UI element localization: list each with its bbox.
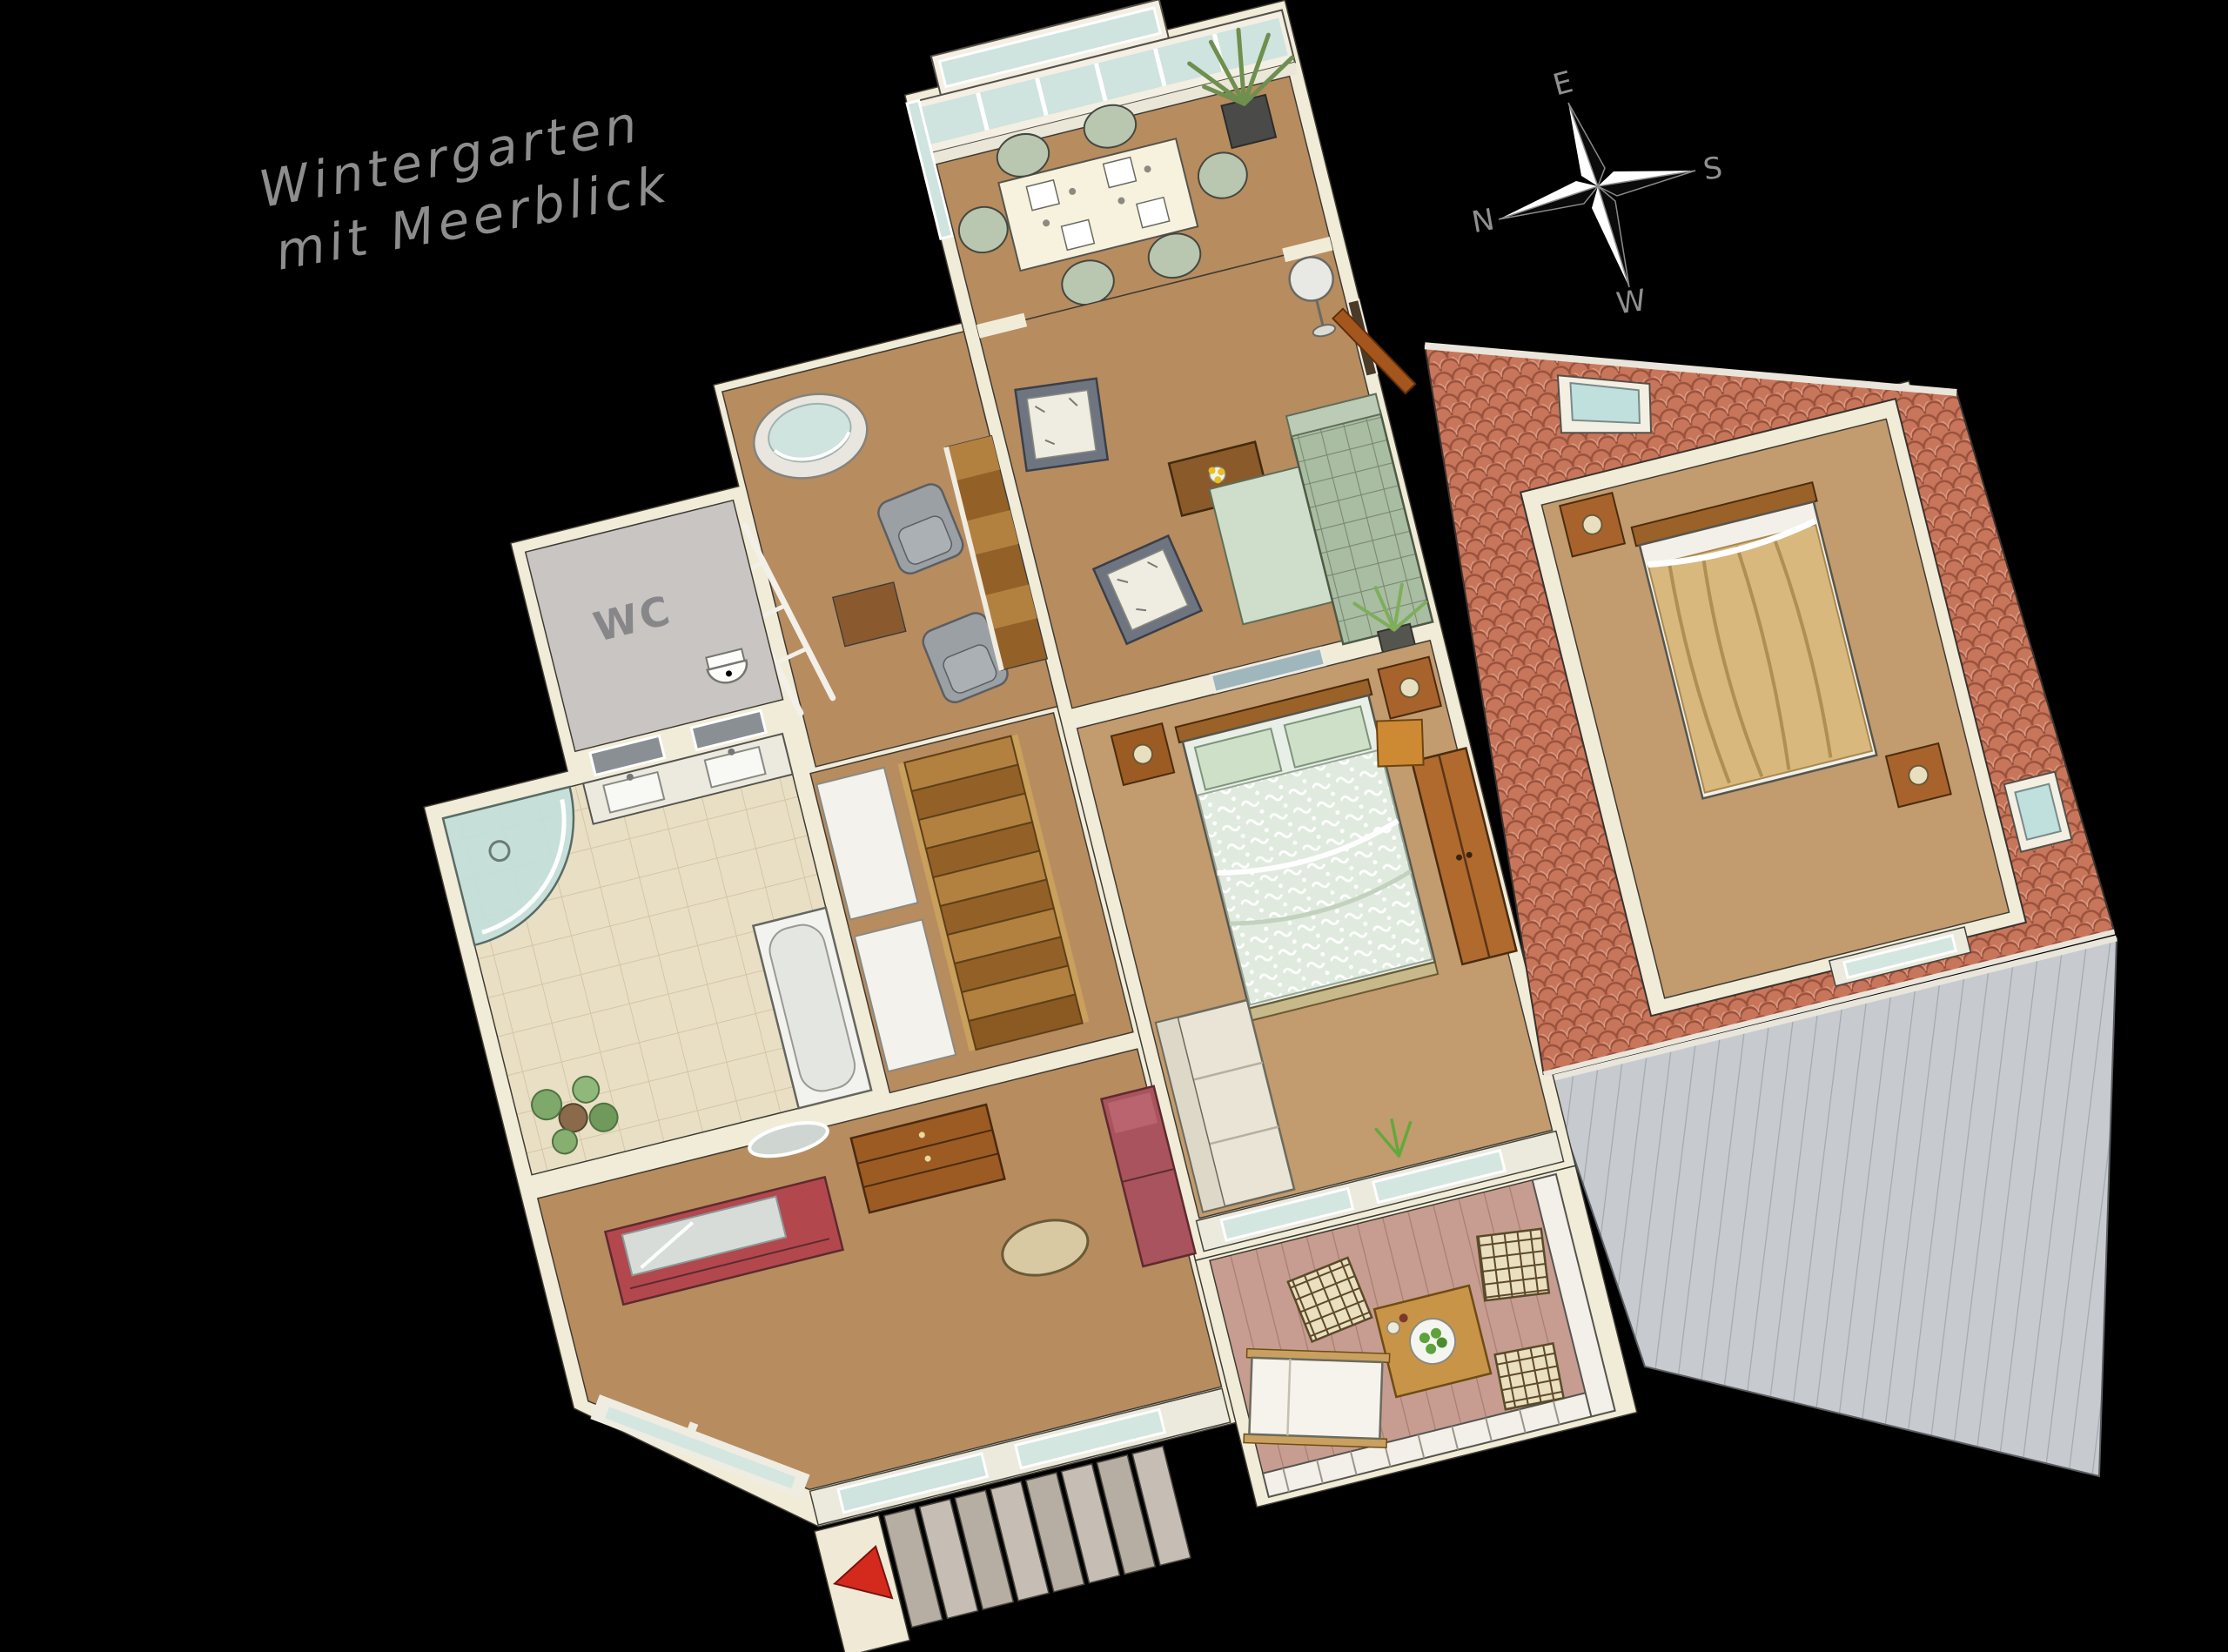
woven-chair <box>1477 1229 1548 1300</box>
compass-west-label: W <box>1614 283 1649 321</box>
patterned-armchair <box>1016 379 1108 471</box>
orange-chair <box>1377 720 1424 767</box>
floorplan-rendering: Wintergarten mit Meerblick E S N W <box>0 0 2228 1652</box>
sun-lounger <box>1244 1349 1390 1448</box>
woven-chair <box>1495 1343 1564 1409</box>
